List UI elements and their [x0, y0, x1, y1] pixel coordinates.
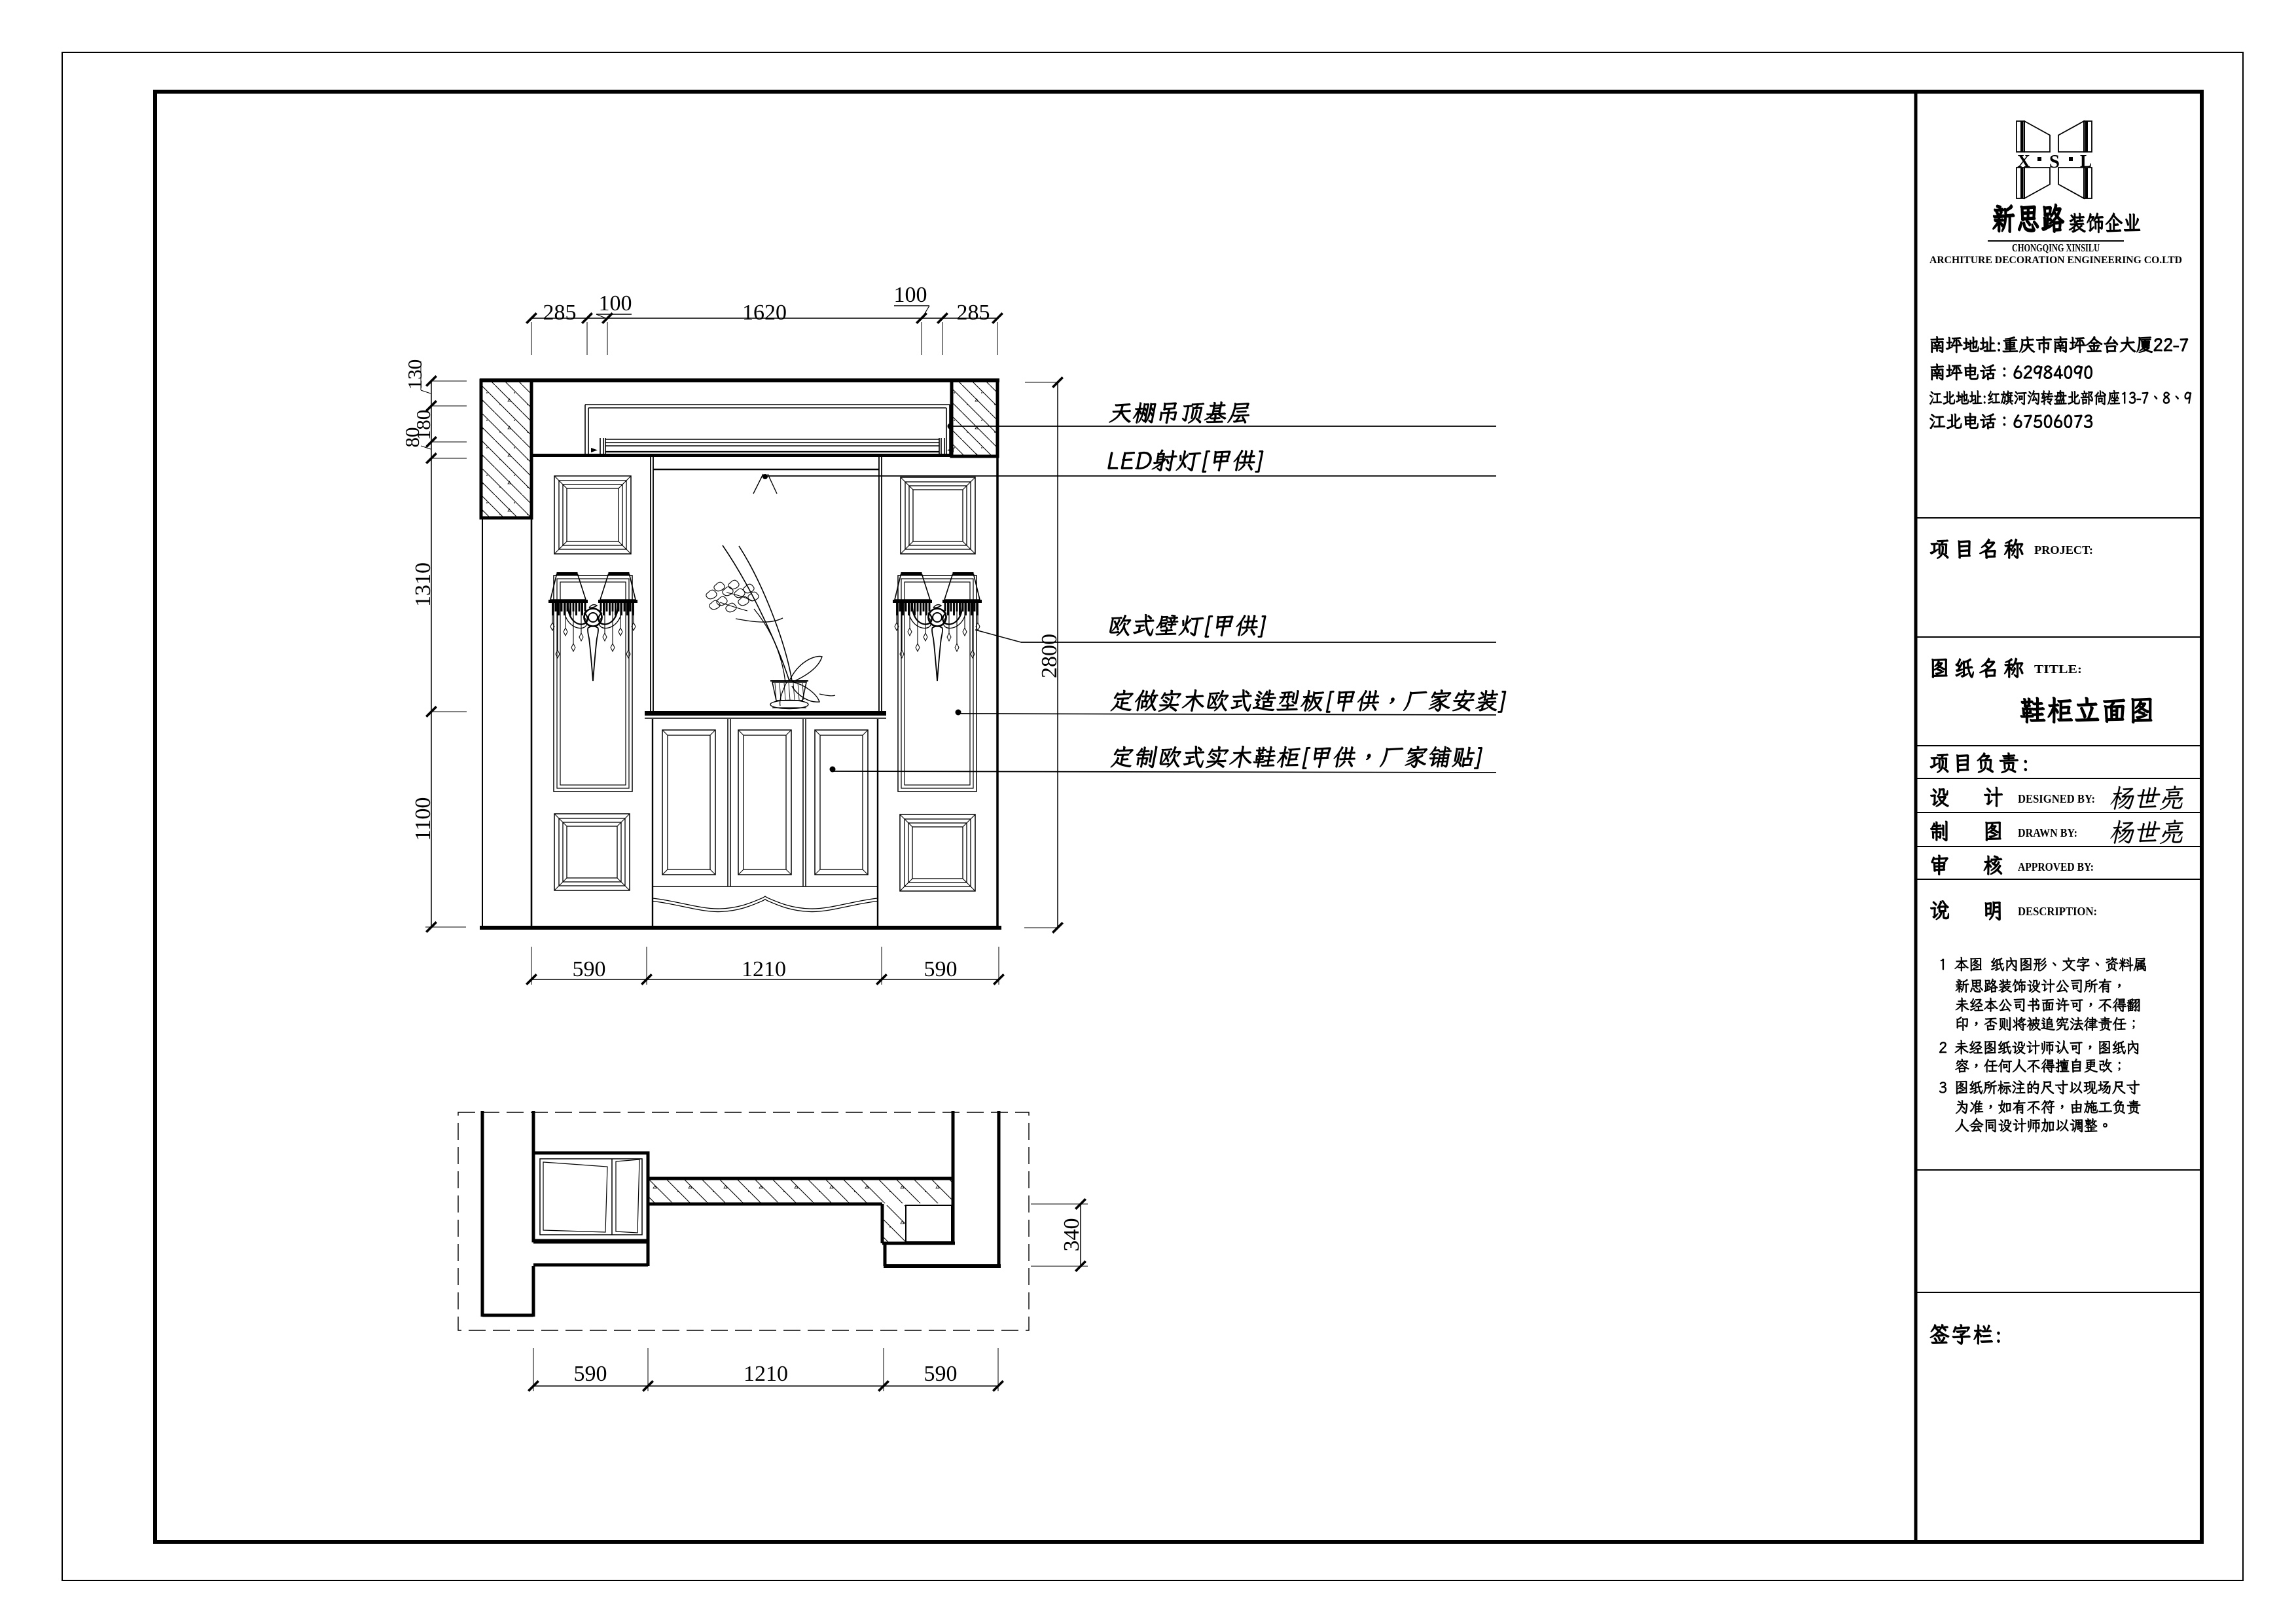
svg-text:1310: 1310	[411, 562, 435, 607]
svg-text:DESCRIPTION:: DESCRIPTION:	[2018, 905, 2097, 918]
svg-text:340: 340	[1060, 1218, 1084, 1252]
svg-text:1210: 1210	[744, 1362, 788, 1386]
svg-text:X: X	[2017, 151, 2030, 171]
svg-text:1210: 1210	[742, 957, 786, 981]
svg-text:CHONGQING XINSILU: CHONGQING XINSILU	[2012, 242, 2100, 254]
svg-text:L: L	[2080, 151, 2092, 171]
svg-text:590: 590	[924, 1362, 958, 1386]
svg-text:590: 590	[573, 957, 606, 981]
svg-text:ARCHITURE DECORATION ENGINEERI: ARCHITURE DECORATION ENGINEERING CO.LTD	[1929, 255, 2182, 266]
svg-text:APPROVED BY:: APPROVED BY:	[2018, 860, 2094, 873]
svg-text:285: 285	[957, 301, 990, 325]
svg-text:590: 590	[574, 1362, 607, 1386]
svg-text:DRAWN BY:: DRAWN BY:	[2018, 826, 2077, 839]
svg-text:DESIGNED BY:: DESIGNED BY:	[2018, 792, 2095, 805]
svg-text:1620: 1620	[742, 301, 787, 325]
svg-text:100: 100	[599, 291, 632, 316]
svg-text:1100: 1100	[411, 797, 435, 841]
svg-text:285: 285	[543, 301, 577, 325]
svg-text:100: 100	[894, 283, 927, 307]
svg-text:PROJECT:: PROJECT:	[2034, 543, 2093, 556]
svg-text:TITLE:: TITLE:	[2034, 663, 2082, 676]
svg-text:S: S	[2049, 151, 2060, 172]
svg-text:130: 130	[403, 359, 426, 390]
svg-text:80: 80	[401, 428, 423, 448]
svg-text:2800: 2800	[1037, 634, 1062, 678]
svg-text:590: 590	[924, 957, 958, 981]
